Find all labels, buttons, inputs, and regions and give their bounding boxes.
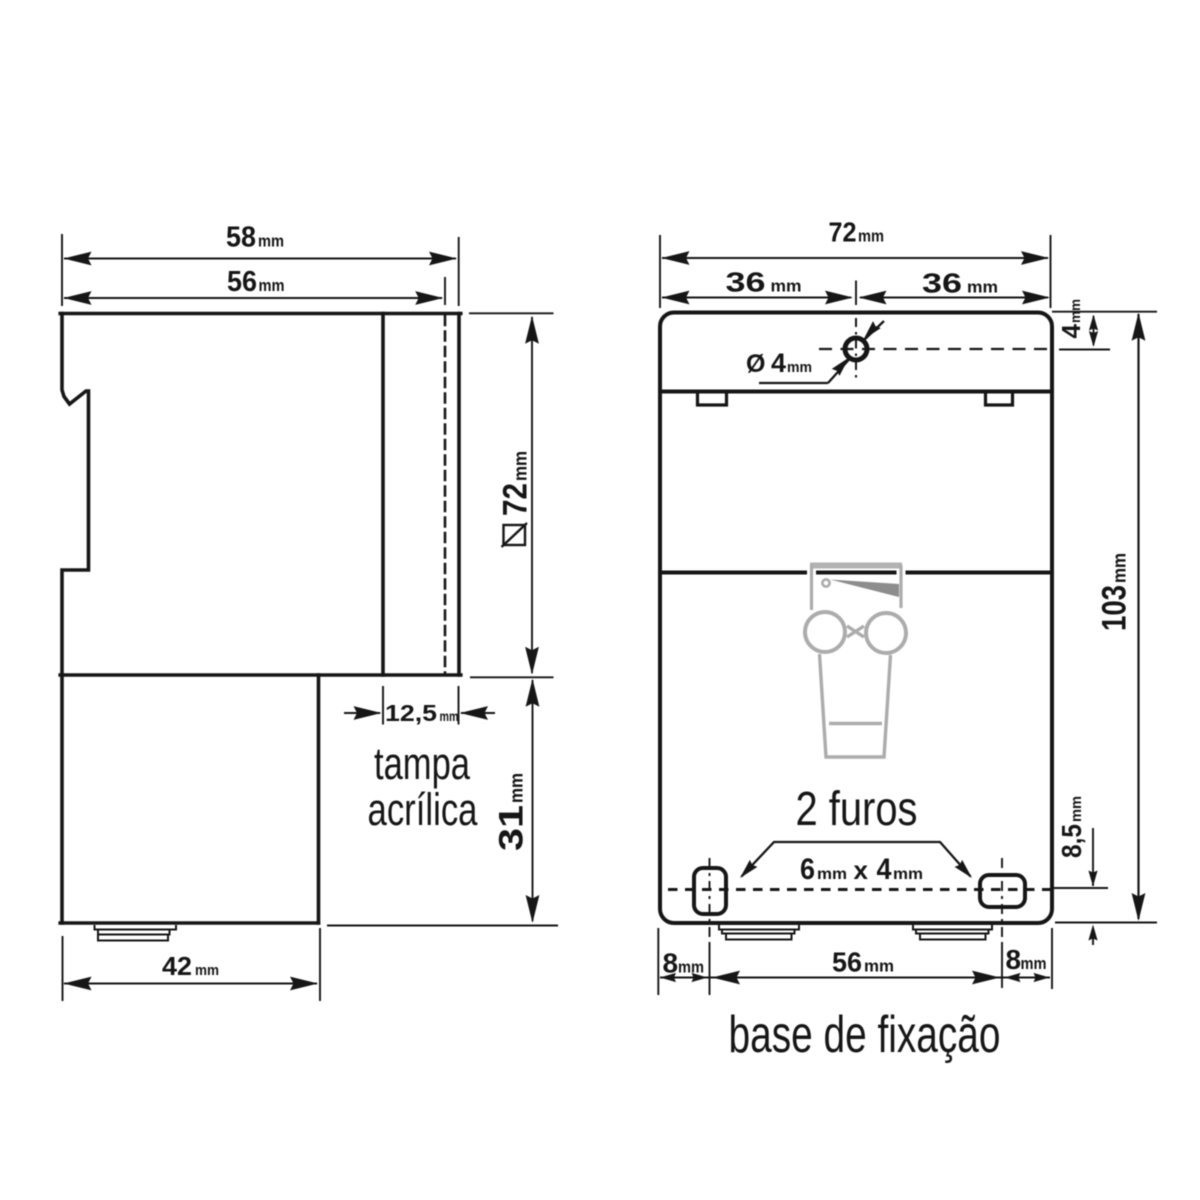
svg-text:2 furos: 2 furos [796,783,918,836]
svg-text:56: 56 [832,947,862,978]
svg-text:mm: mm [678,959,704,977]
svg-text:mm: mm [440,708,459,724]
svg-text:42: 42 [162,951,192,981]
svg-text:58: 58 [226,222,256,254]
svg-text:8: 8 [1006,944,1022,975]
svg-text:tampa: tampa [374,738,471,789]
svg-text:12,5: 12,5 [385,700,437,726]
svg-text:mm: mm [858,228,884,246]
svg-text:56: 56 [227,266,257,298]
svg-text:8: 8 [663,948,679,979]
svg-text:x: x [854,855,869,885]
svg-text:mm: mm [893,866,923,883]
svg-text:mm: mm [817,866,847,883]
svg-text:base de fixação: base de fixação [729,1006,1001,1064]
svg-text:mm: mm [195,962,219,979]
svg-text:72: 72 [829,217,857,248]
svg-text:mm: mm [771,278,802,296]
svg-text:mm: mm [967,279,998,297]
svg-text:mm: mm [259,277,285,295]
svg-text:4: 4 [877,853,892,886]
svg-text:mm: mm [1021,955,1047,973]
svg-text:36: 36 [922,268,962,299]
svg-text:4: 4 [771,348,786,378]
svg-text:mm: mm [864,958,894,976]
svg-text:acrílica: acrílica [368,784,479,835]
svg-text:Ø: Ø [746,350,765,378]
svg-text:mm: mm [258,233,284,251]
svg-text:36: 36 [726,267,766,298]
svg-text:6: 6 [800,853,815,886]
svg-text:mm: mm [787,359,812,376]
